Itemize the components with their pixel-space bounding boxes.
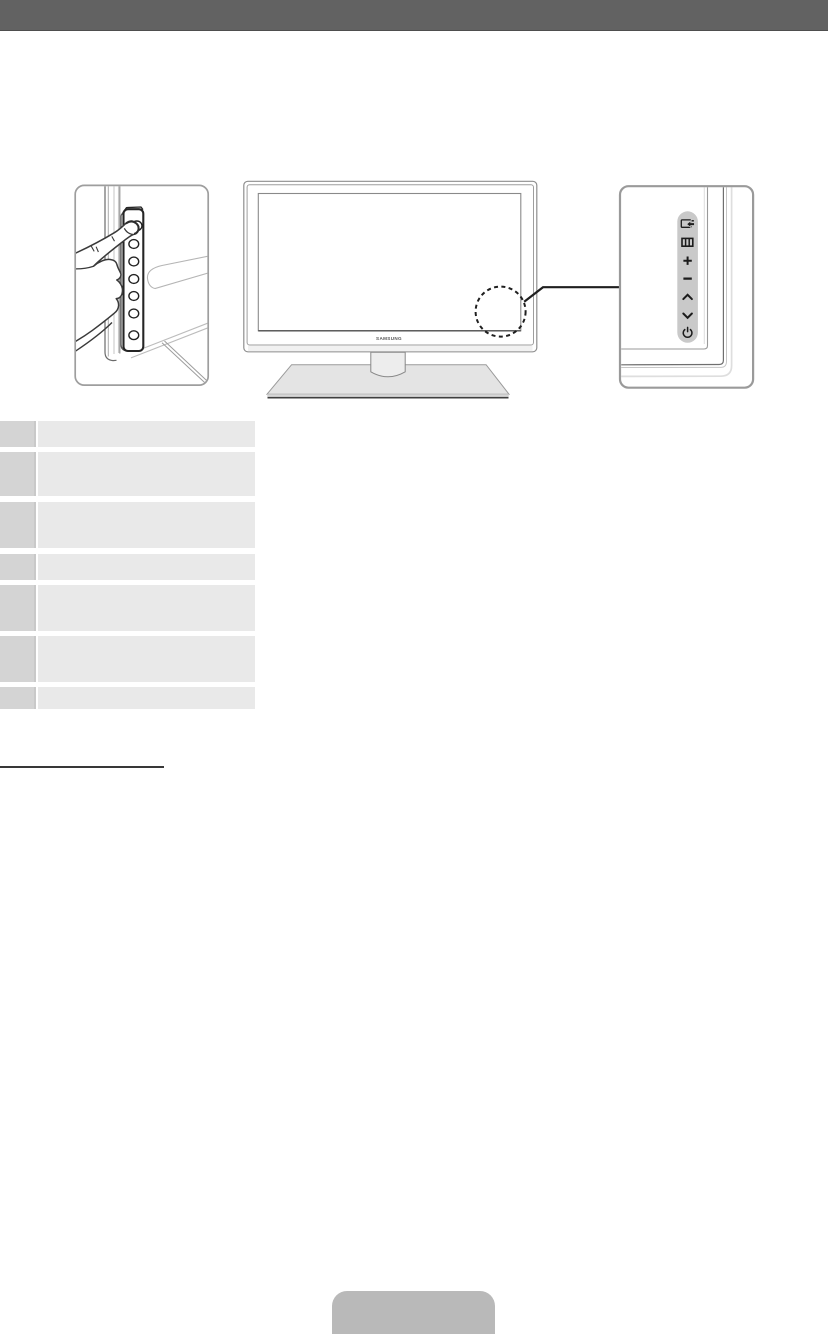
svg-text:SAMSUNG: SAMSUNG [376,336,402,341]
